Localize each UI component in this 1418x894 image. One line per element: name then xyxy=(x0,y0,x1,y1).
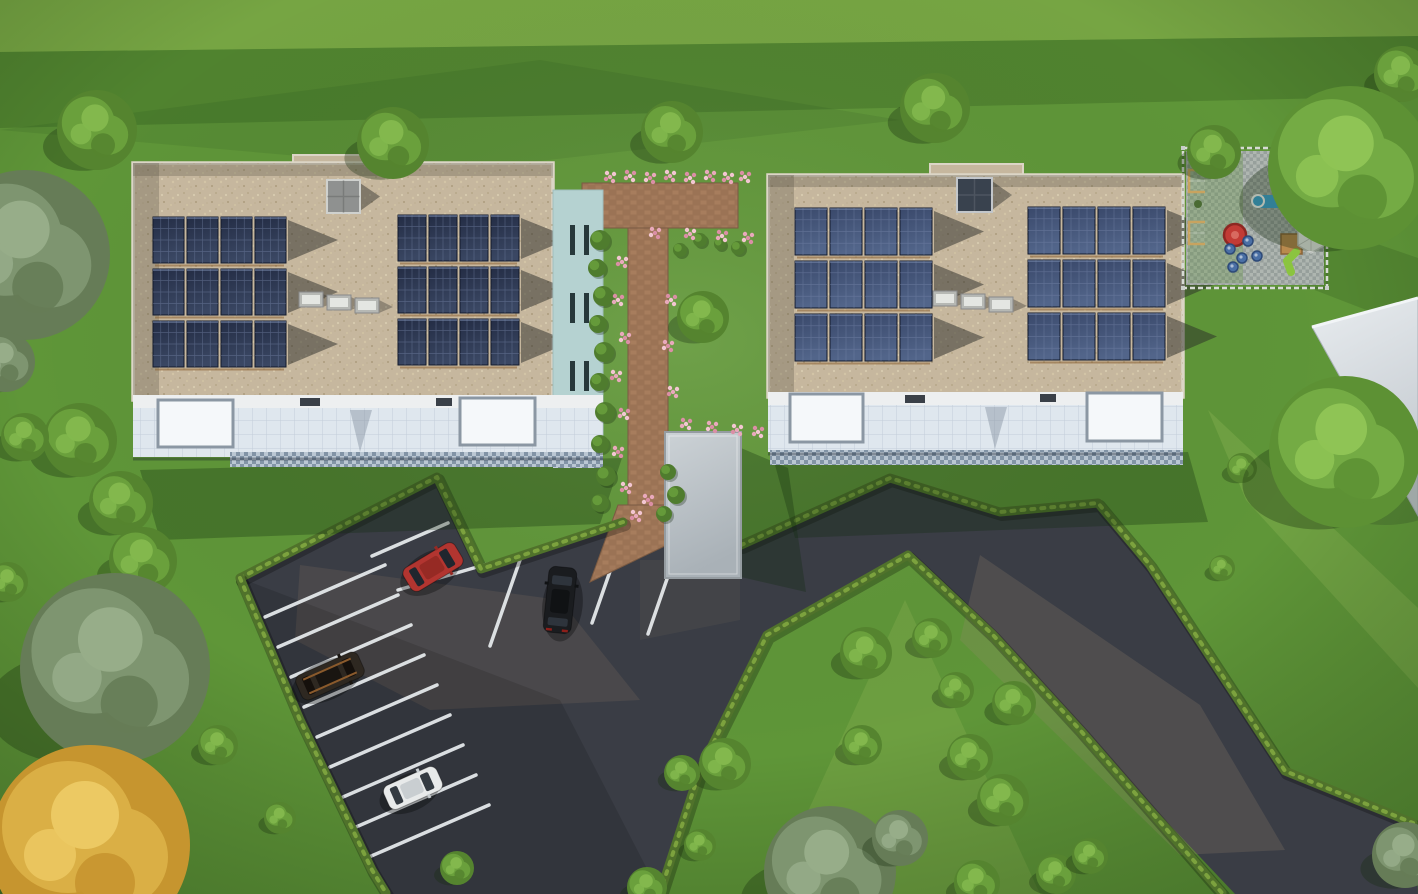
building-right xyxy=(768,164,1217,465)
skylight xyxy=(1087,393,1162,441)
building-left xyxy=(133,155,603,468)
aerial-site-plan xyxy=(0,0,1418,894)
skylight xyxy=(790,394,863,442)
solar-array xyxy=(795,208,984,364)
balcony-checker-strip xyxy=(770,450,1183,465)
skylight xyxy=(460,398,535,445)
solar-array xyxy=(398,215,571,368)
site-render-canvas xyxy=(0,0,1418,894)
skylight xyxy=(158,400,233,447)
